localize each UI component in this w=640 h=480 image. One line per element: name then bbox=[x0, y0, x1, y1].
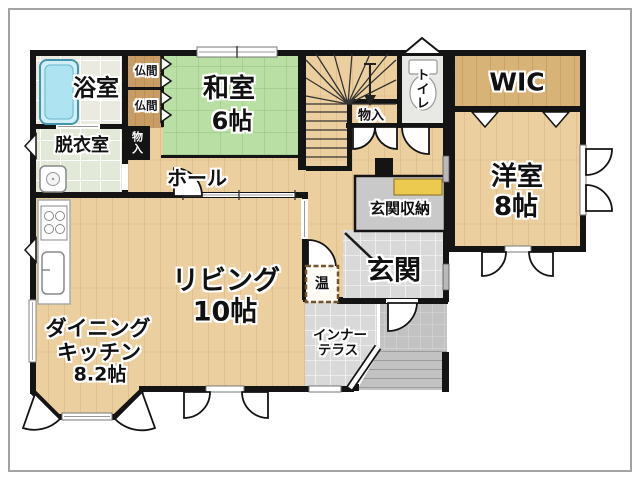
room-label-hall: ホール bbox=[167, 168, 227, 188]
label-water-heater: 温 bbox=[315, 277, 329, 291]
label-closet-left: 物入 bbox=[132, 131, 143, 155]
room-size-living: 10帖 bbox=[193, 299, 258, 326]
label-closet-stairs: 物入 bbox=[358, 110, 384, 123]
room-label-terrace-2: テラス bbox=[318, 344, 358, 358]
room-label-japanese-room: 和室 bbox=[203, 76, 255, 102]
room-label-terrace-1: インナー bbox=[313, 329, 367, 343]
room-label-living: リビング bbox=[172, 268, 280, 295]
bedroom-window-lower bbox=[586, 185, 612, 211]
room-label-dressing-room: 脱衣室 bbox=[55, 137, 109, 155]
room-label-entrance: 玄関 bbox=[367, 258, 421, 285]
bedroom-door-right bbox=[529, 252, 553, 276]
room-label-bathroom: 浴室 bbox=[73, 78, 119, 101]
living-terrace-door-left bbox=[184, 392, 210, 418]
room-label-butsuma-1: 仏間 bbox=[135, 65, 158, 77]
room-size-dk: 8.2帖 bbox=[74, 366, 127, 385]
label-entrance-storage: 玄関収納 bbox=[370, 202, 430, 217]
toilet-vent-mark bbox=[403, 38, 442, 54]
room-label-toilet: トイレ bbox=[415, 68, 428, 110]
living-terrace-door-right bbox=[242, 392, 268, 418]
bedroom-window-upper bbox=[586, 149, 612, 175]
room-label-butsuma-2: 仏間 bbox=[135, 100, 158, 112]
room-label-western-room: 洋室 bbox=[491, 164, 543, 190]
room-label-kitchen: キッチン bbox=[57, 343, 141, 364]
room-size-japanese-room: 6帖 bbox=[212, 109, 253, 133]
room-label-dining: ダイニング bbox=[46, 319, 151, 340]
sink-icon bbox=[42, 252, 64, 294]
kitchen-counter-icon bbox=[38, 200, 70, 304]
room-size-western-room: 8帖 bbox=[494, 194, 538, 220]
bedroom-door-left bbox=[482, 252, 506, 276]
floorplan: 浴室 脱衣室 仏間 仏間 和室 6帖 物入 ホール 物入 トイレ WIC 洋室 … bbox=[0, 0, 640, 480]
room-label-wic: WIC bbox=[489, 70, 544, 95]
washbasin-icon bbox=[40, 166, 66, 192]
